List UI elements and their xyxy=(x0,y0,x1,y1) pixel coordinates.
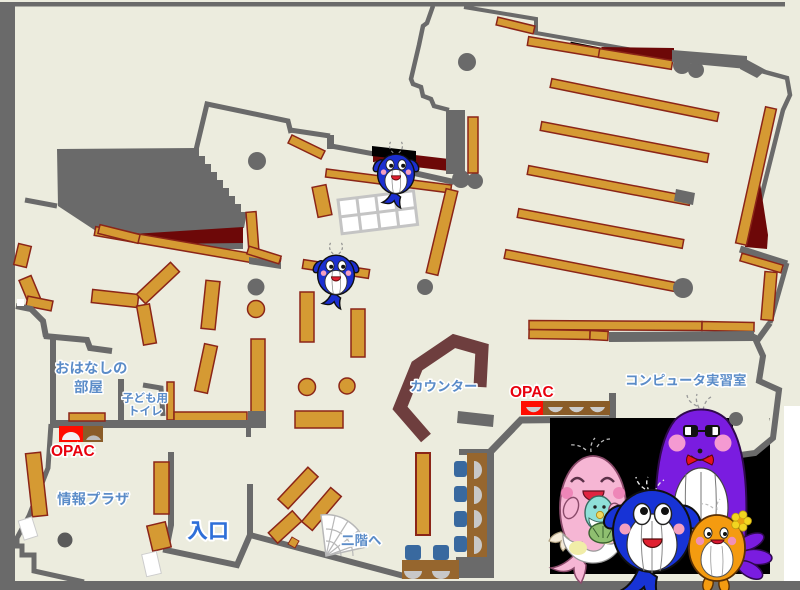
svg-text:OPAC: OPAC xyxy=(51,443,95,460)
svg-text:OPAC: OPAC xyxy=(510,384,554,401)
